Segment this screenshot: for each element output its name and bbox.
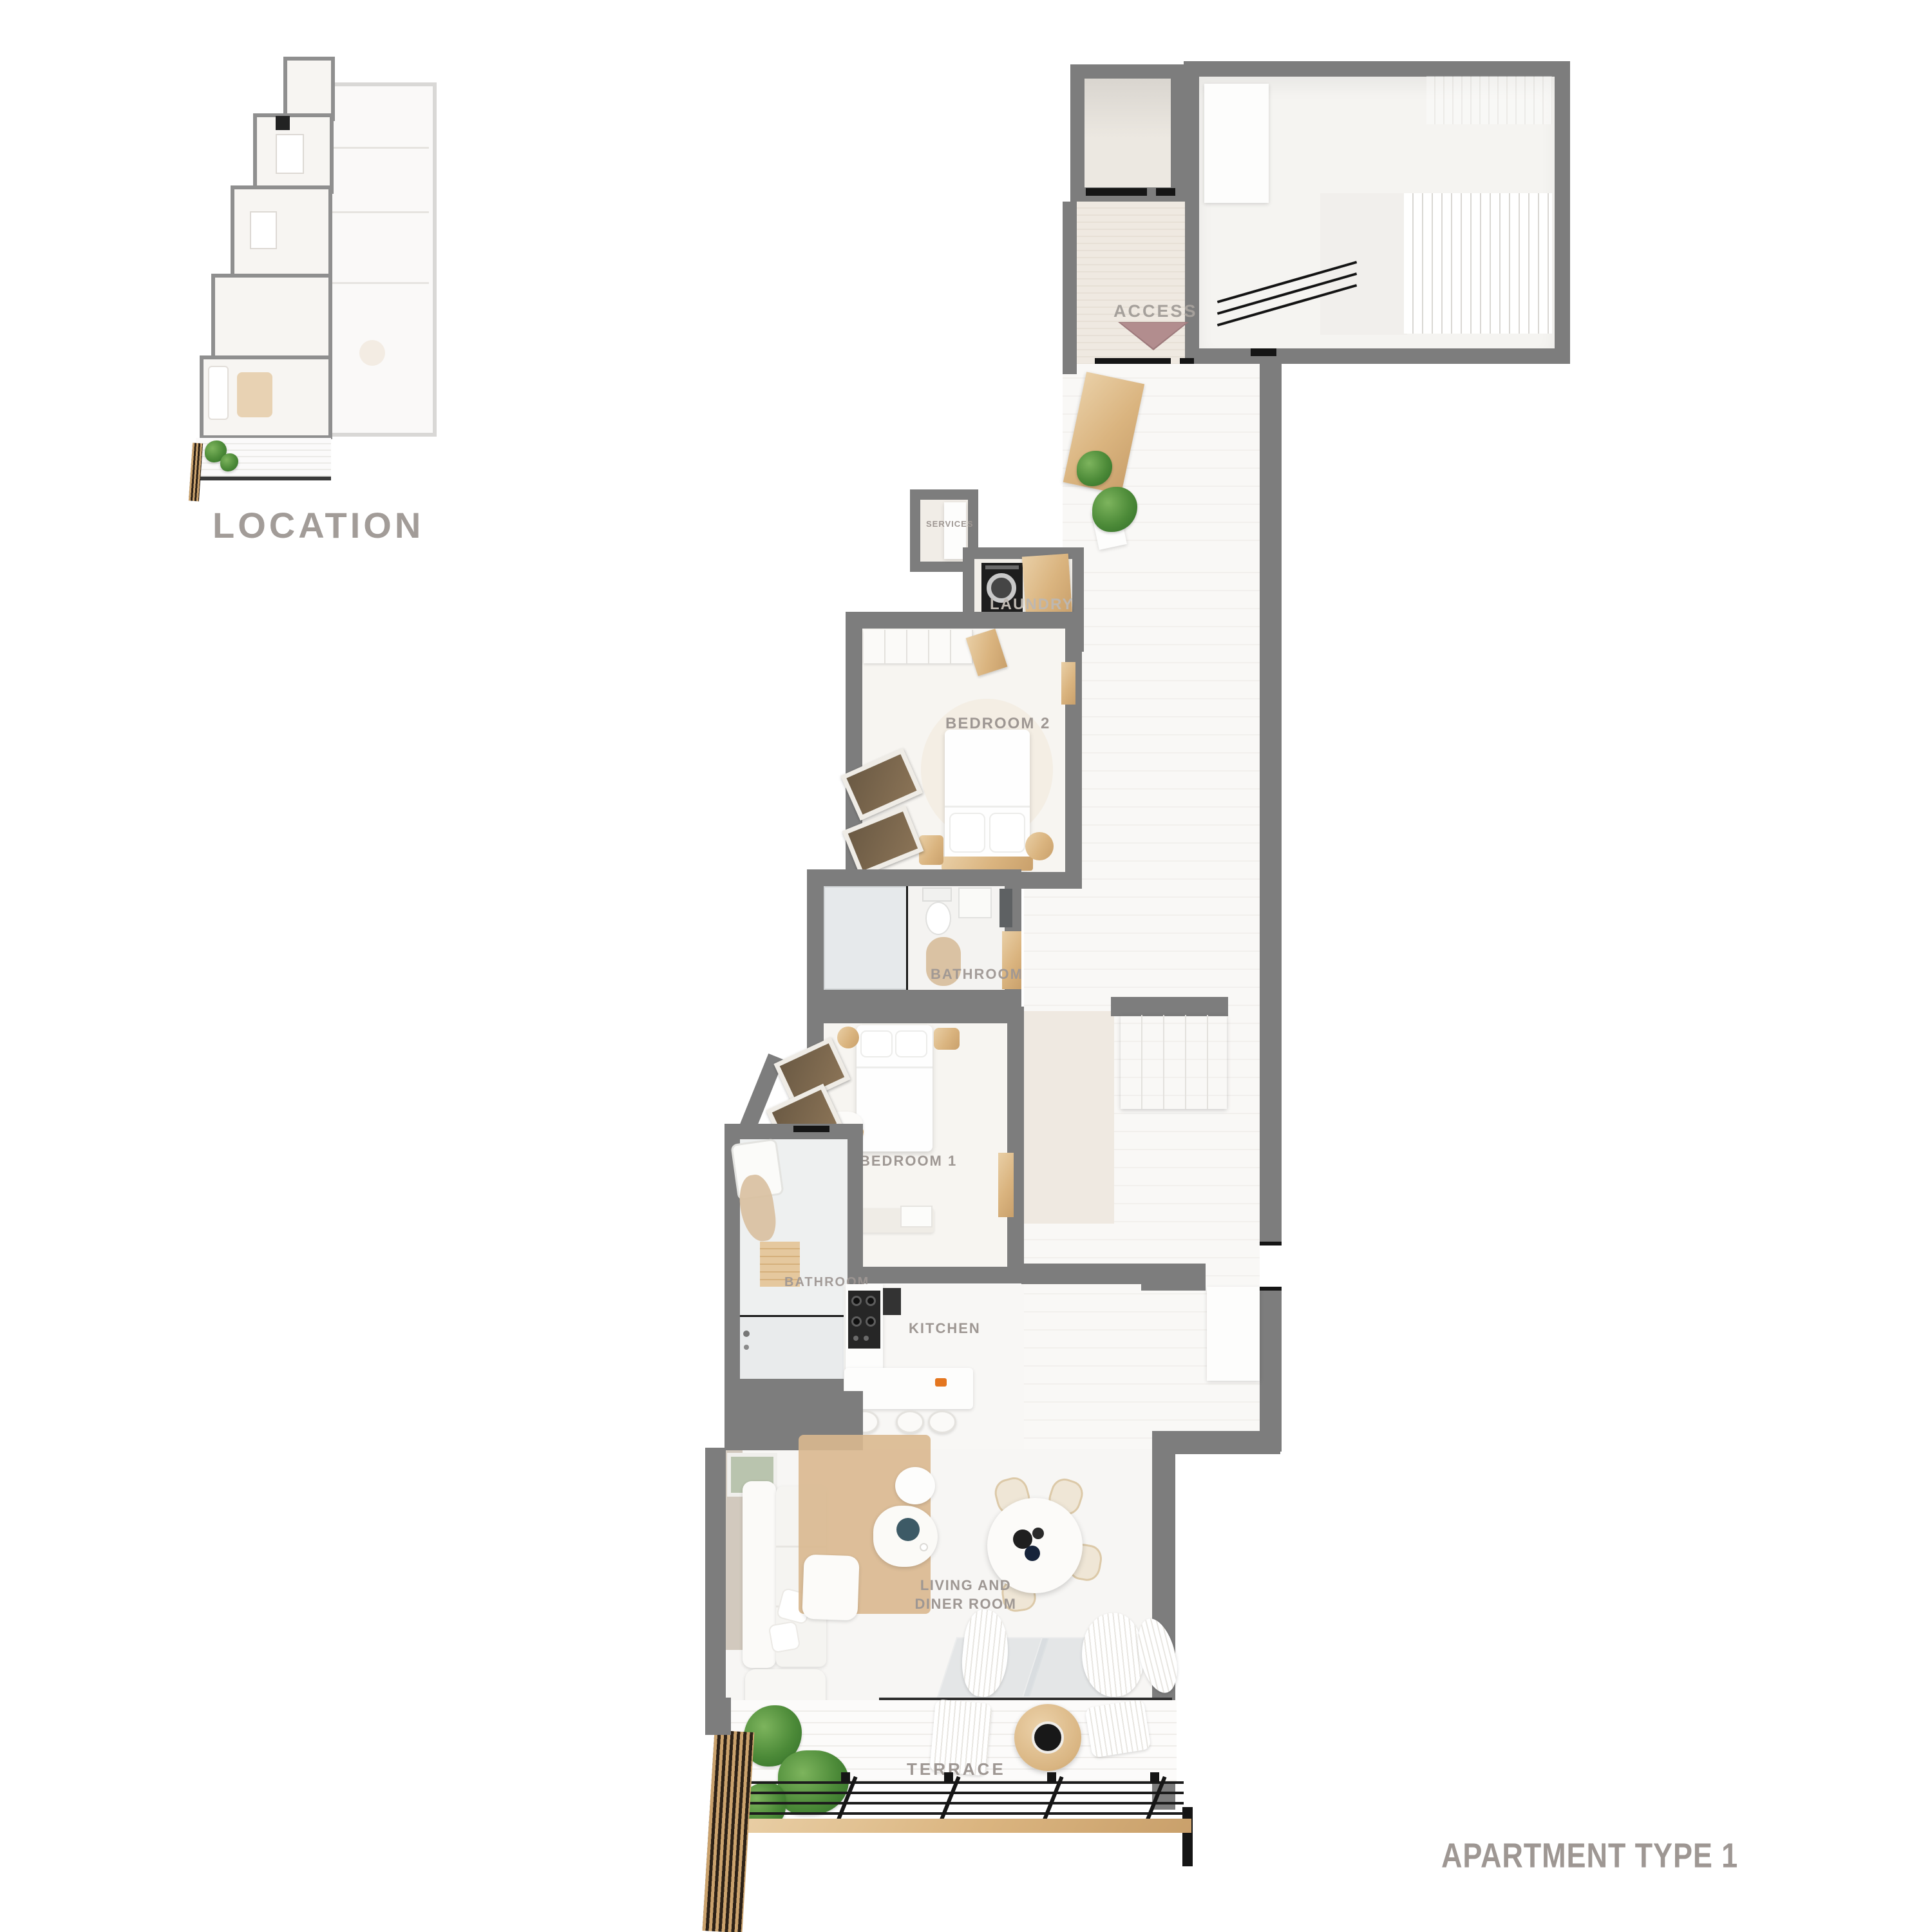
- hall-wardrobe: [1121, 1015, 1227, 1109]
- services-label: SERVICES: [926, 519, 974, 529]
- toilet-tank: [922, 887, 952, 902]
- pouf-chair: [895, 1467, 935, 1504]
- terrace-side-table-center: [1032, 1721, 1064, 1754]
- bedroom2-bed: [945, 730, 1030, 868]
- bedroom1-door-leaf: [998, 1153, 1014, 1217]
- terrace-deck-edge: [733, 1819, 1191, 1833]
- living-wood-cabinet: [1132, 1450, 1152, 1611]
- bedroom1-bed: [857, 1025, 933, 1151]
- vestibule-door: [1086, 188, 1147, 196]
- bed-fold-line: [857, 1066, 933, 1068]
- stairwell-door: [1251, 348, 1276, 356]
- coffee-table-tray: [896, 1518, 920, 1541]
- access-arrow-icon-inner: [1121, 323, 1186, 348]
- bedroom2-headboard: [942, 857, 1033, 871]
- apartment-floor-plan: ACCESS SERVICES LAUNDRY: [0, 0, 1932, 1932]
- cooktop-dial: [853, 1336, 858, 1341]
- kitchen-tall-cabinet: [1207, 1287, 1260, 1381]
- kitchen-island: [844, 1368, 973, 1409]
- burner: [866, 1316, 876, 1327]
- stair-landing: [1320, 193, 1407, 335]
- bedroom2-door-leaf: [1061, 662, 1075, 705]
- table-decor: [1032, 1528, 1044, 1539]
- cooktop: [848, 1291, 880, 1349]
- living-left-wall: [705, 1448, 726, 1721]
- bedroom1-label: BEDROOM 1: [860, 1153, 957, 1170]
- bed-pillow: [860, 1030, 893, 1057]
- terrace-slat-screen: [703, 1730, 755, 1932]
- bed-pillow: [895, 1030, 927, 1057]
- bathroom-sink: [958, 887, 992, 918]
- bathroom-upper-label: BATHROOM: [931, 966, 1023, 983]
- stair-upper-flight-ghost: [1426, 76, 1552, 124]
- vestibule-room: [1070, 64, 1185, 202]
- terrace-railing: [741, 1781, 1184, 1820]
- cooktop-dial: [864, 1336, 869, 1341]
- floorplan-page: LOCATION ACCESS: [0, 0, 1932, 1932]
- railing-post: [841, 1772, 850, 1783]
- nook-top-wall: [1111, 997, 1228, 1016]
- bedroom1-nightstand: [837, 1027, 859, 1048]
- kitchen-label: KITCHEN: [909, 1320, 981, 1337]
- bedroom2-side-table: [1025, 832, 1054, 860]
- railing-post: [1047, 1772, 1056, 1783]
- sun-lounger: [1084, 1699, 1151, 1757]
- bedroom2-label: BEDROOM 2: [945, 715, 1050, 733]
- bar-stool: [928, 1410, 956, 1434]
- access-label: ACCESS: [1113, 301, 1198, 321]
- stairwell-closet: [1204, 84, 1269, 203]
- plan-title: APARTMENT TYPE 1: [1441, 1835, 1738, 1876]
- burner: [866, 1296, 876, 1306]
- vestibule-door-stub: [1156, 188, 1175, 196]
- burner: [851, 1316, 862, 1327]
- bathroom-mirror-cabinet: [999, 889, 1012, 927]
- shower-fixture: [744, 1345, 749, 1350]
- corridor-door-gap: [1260, 1245, 1282, 1287]
- terrace-corner-post: [1182, 1807, 1193, 1866]
- access-door: [1095, 358, 1171, 364]
- access-door-stub: [1180, 358, 1194, 364]
- kitchen-top-wall: [1021, 1264, 1144, 1284]
- living-diner-label: LIVING AND DINER ROOM: [909, 1577, 1022, 1613]
- bed-pillow: [989, 813, 1025, 853]
- railing-post: [944, 1772, 953, 1783]
- railing-post: [1150, 1772, 1159, 1783]
- coffee-table-cup: [920, 1543, 928, 1551]
- burner: [851, 1296, 862, 1306]
- armchair: [802, 1555, 859, 1621]
- corridor-door-jamb: [1260, 1287, 1282, 1291]
- corridor-door-jamb: [1260, 1242, 1282, 1245]
- living-top-right-wall: [1152, 1431, 1280, 1454]
- kitchen-top-wall-chunk: [1141, 1264, 1206, 1291]
- bed-pillow: [949, 813, 985, 853]
- bedroom1-nightstand: [934, 1028, 960, 1050]
- table-decor: [1025, 1546, 1040, 1561]
- kitchen-kettle: [935, 1378, 947, 1387]
- laundry-label: LAUNDRY: [990, 596, 1074, 614]
- oven: [883, 1288, 901, 1315]
- washing-machine-panel: [985, 565, 1019, 569]
- shower-upper: [824, 886, 907, 990]
- bed-fold-line: [945, 806, 1030, 808]
- shower-glass-line: [906, 886, 908, 990]
- bedroom1-desk-box: [900, 1206, 933, 1227]
- access-left-wall: [1063, 202, 1077, 374]
- bathroom-lower-door: [793, 1126, 829, 1132]
- shower-fixture: [743, 1331, 750, 1337]
- throw-pillow: [768, 1621, 801, 1654]
- bar-stool: [896, 1410, 924, 1434]
- stair-treads: [1404, 193, 1552, 334]
- terrace-left-wall-stub: [705, 1698, 731, 1735]
- hall-nook-floor: [1024, 1011, 1114, 1224]
- toilet-bowl: [925, 902, 951, 935]
- shower-lower-floor: [740, 1317, 848, 1379]
- bedroom2-wardrobe: [864, 630, 973, 663]
